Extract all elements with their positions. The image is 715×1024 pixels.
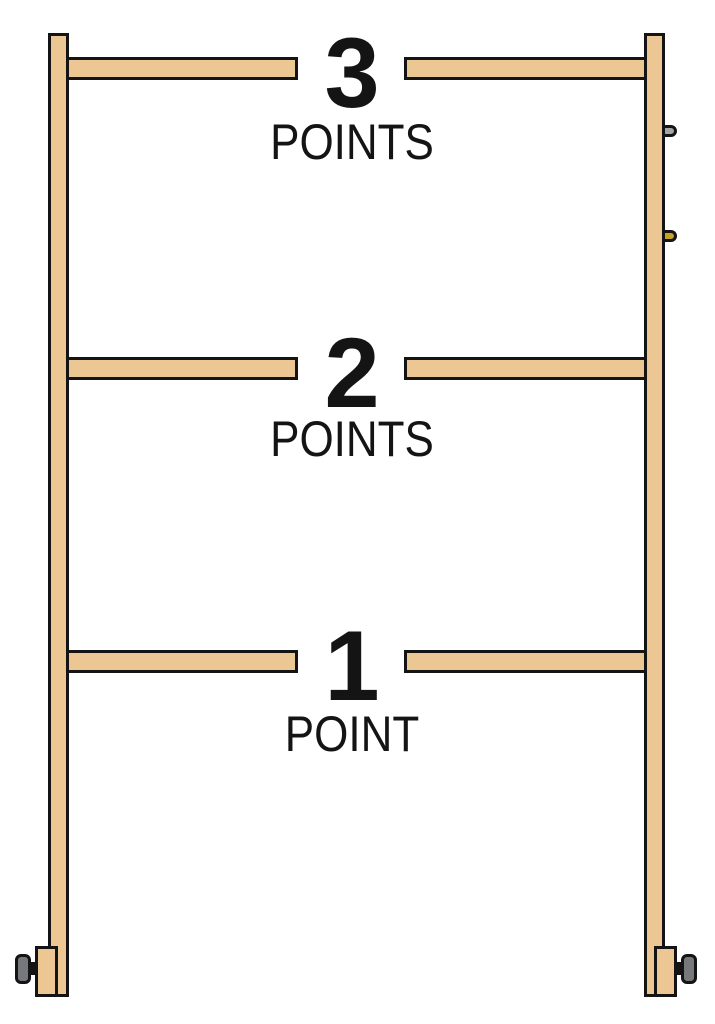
rung-2-points-label: POINTS xyxy=(270,414,434,464)
rung-2-rail-right xyxy=(404,357,660,380)
rung-1-points-label: POINT xyxy=(285,709,419,759)
left-post xyxy=(48,33,69,997)
left-foot-knob-icon xyxy=(15,954,31,984)
right-post xyxy=(644,33,665,997)
left-foot-block xyxy=(35,946,58,997)
right-foot-block xyxy=(654,946,677,997)
rung-1-rail-right xyxy=(404,650,660,673)
right-foot-knob-icon xyxy=(681,954,697,984)
rung-3-points-label: POINTS xyxy=(270,117,434,167)
rung-3-points-number: 3 xyxy=(324,23,379,122)
rung-2-points-number: 2 xyxy=(324,323,379,422)
rung-3-rail-right xyxy=(404,57,660,80)
rung-3-rail-left xyxy=(55,57,298,80)
rung-1-points-number: 1 xyxy=(324,616,379,715)
ladder-toss-scoring-diagram: 3 POINTS 2 POINTS 1 POINT xyxy=(0,0,715,1024)
rung-1-rail-left xyxy=(55,650,298,673)
rung-2-rail-left xyxy=(55,357,298,380)
